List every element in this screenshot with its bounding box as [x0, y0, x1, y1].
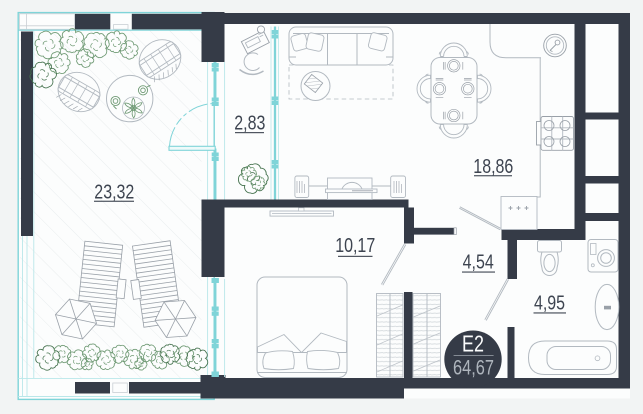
svg-text:10,17: 10,17: [335, 233, 375, 256]
svg-text:2,83: 2,83: [234, 111, 265, 134]
svg-text:4,95: 4,95: [534, 291, 565, 314]
svg-text:18,86: 18,86: [473, 154, 513, 177]
svg-text:23,32: 23,32: [94, 180, 134, 203]
svg-text:64,67: 64,67: [453, 356, 494, 379]
svg-text:E2: E2: [462, 331, 484, 357]
svg-text:4,54: 4,54: [463, 250, 494, 273]
